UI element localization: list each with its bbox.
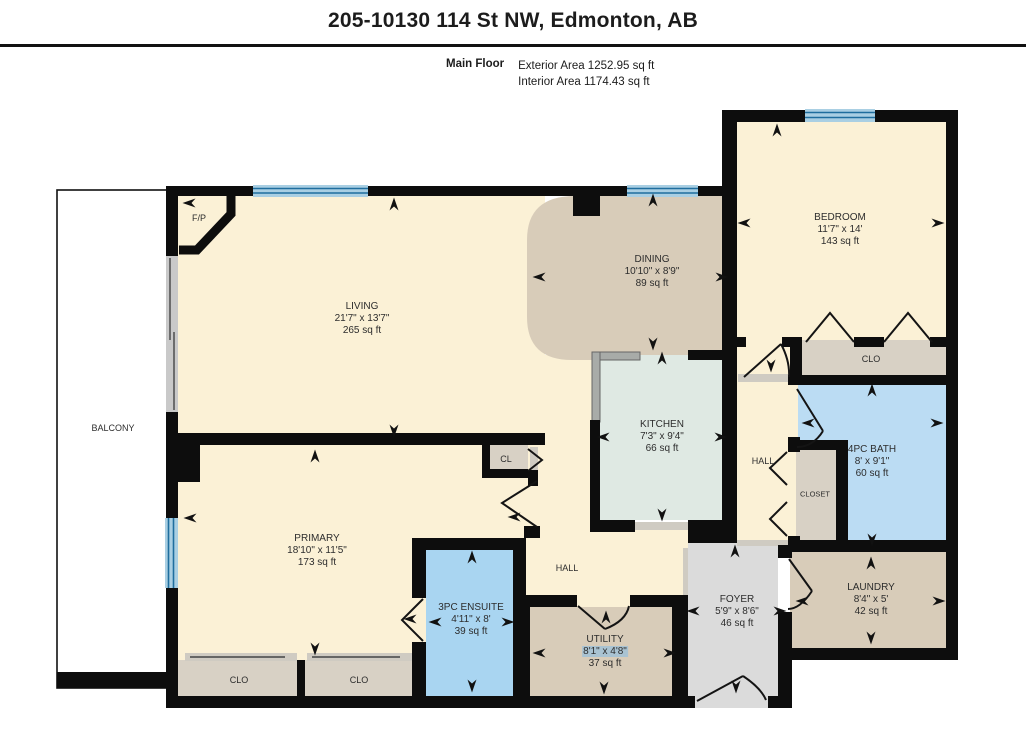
label-closet: CLOSET — [800, 490, 830, 499]
label-hall-lower: HALL — [556, 563, 579, 573]
room-label-bedroom: BEDROOM11'7" x 14'143 sq ft — [814, 212, 866, 248]
label-fireplace: F/P — [192, 213, 206, 223]
room-label-laundry: LAUNDRY8'4" x 5'42 sq ft — [847, 582, 895, 618]
label-hall-upper: HALL — [752, 456, 775, 466]
label-clo-bedroom: CLO — [862, 354, 881, 364]
label-clo-primary-1: CLO — [230, 675, 249, 685]
room-label-utility: UTILITY8'1" x 4'8"37 sq ft — [582, 634, 628, 670]
selected-dimension-text: 8'1" x 4'8" — [582, 646, 628, 657]
label-cl: CL — [500, 454, 512, 464]
room-label-living: LIVING21'7" x 13'7"265 sq ft — [335, 301, 390, 337]
room-label-foyer: FOYER5'9" x 8'6"46 sq ft — [715, 594, 759, 630]
label-clo-primary-2: CLO — [350, 675, 369, 685]
floor-plan-drawing — [0, 0, 1026, 738]
room-label-dining: DINING10'10" x 8'9"89 sq ft — [625, 254, 680, 290]
room-label-bath: 4PC BATH8' x 9'1"60 sq ft — [848, 444, 896, 480]
label-balcony: BALCONY — [91, 423, 134, 433]
room-label-kitchen: KITCHEN7'3" x 9'4"66 sq ft — [640, 419, 684, 455]
room-label-primary: PRIMARY18'10" x 11'5"173 sq ft — [287, 533, 347, 569]
room-label-ensuite: 3PC ENSUITE4'11" x 8'39 sq ft — [438, 602, 504, 638]
sliding-door — [166, 256, 178, 412]
floor-plan-page: 205-10130 114 St NW, Edmonton, AB Main F… — [0, 0, 1026, 738]
